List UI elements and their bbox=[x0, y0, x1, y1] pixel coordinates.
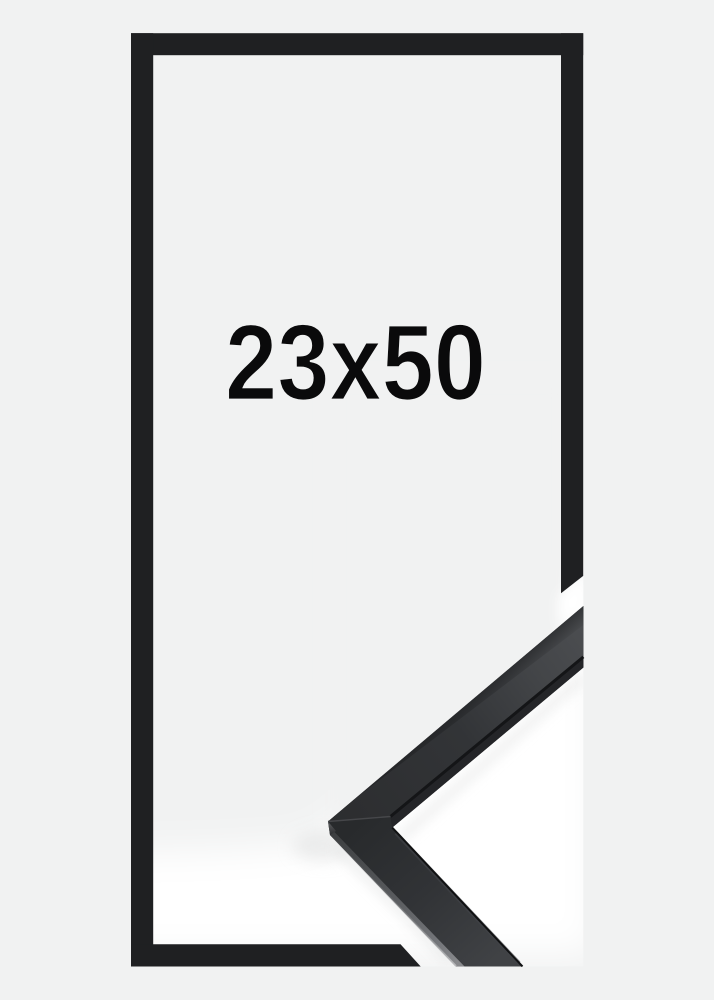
svg-text:23x50: 23x50 bbox=[225, 301, 486, 422]
